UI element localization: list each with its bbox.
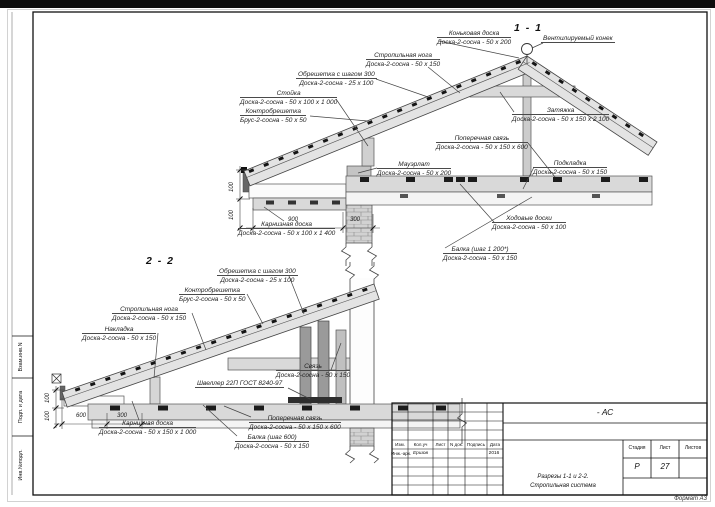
titleblock-stage-label: Стадия xyxy=(623,445,651,451)
roof-slope-right xyxy=(518,56,657,155)
titleblock-signer-date: 2016 xyxy=(485,451,503,456)
dim-600: 600 xyxy=(76,413,86,419)
titleblock-col-list: Лист xyxy=(433,442,448,447)
titleblock-sheet-value: 27 xyxy=(651,462,679,471)
callout-lathing-1-1: Обрешетка с шагом 300 Доска-2-сосна - 25… xyxy=(296,71,377,87)
titleblock-col-podpis: Подпись xyxy=(465,442,487,447)
callout-stud: Стойка Доска-2-сосна - 50 х 100 х 1 000 xyxy=(240,90,337,106)
dim-900: 900 xyxy=(288,217,298,223)
ridge-vent-circle xyxy=(522,44,533,55)
callout-cross-brace-1-1: Поперечная связь Доска-2-сосна - 50 х 15… xyxy=(436,135,528,151)
callout-counter-lathing-1-1: Контробрешетка Брус-2-сосна - 50 х 50 xyxy=(240,108,306,124)
callout-walk-boards: Ходовые доски Доска-2-сосна - 50 х 100 xyxy=(492,215,566,231)
titleblock-sheets-label: Листов xyxy=(679,445,707,451)
dim-300-s2: 300 xyxy=(117,413,127,419)
callout-ridge-board: Коньковая доска Доска-2-сосна - 50 х 200 xyxy=(437,30,511,46)
callout-vent-ridge: Вентилируемый конек xyxy=(541,35,615,43)
callout-eave-board-1-1: Карнизная доска Доска-2-сосна - 50 х 100… xyxy=(238,221,335,237)
stud-block xyxy=(362,138,374,166)
callout-channel: Швеллер 22П ГОСТ 8240-97 xyxy=(195,380,284,388)
callout-rafter-1-1: Стропильная нога Доска-2-сосна - 50 х 15… xyxy=(366,52,440,68)
dim-100-s2a: 100 xyxy=(45,390,53,406)
titleblock-stage-value: Р xyxy=(623,462,651,471)
wall-1-1 xyxy=(346,205,372,243)
callout-cross-brace-2-2: Поперечная связь Доска-2-сосна - 50 х 15… xyxy=(249,415,341,431)
section-title-2-2: 2 - 2 xyxy=(146,255,175,267)
callout-lathing-2-2: Обрешетка с шагом 300 Доска-2-сосна - 25… xyxy=(217,268,298,284)
titleblock-doc-title-line1: Разрезы 1-1 и 2-2. xyxy=(505,474,621,480)
titleblock-col-ndok: N док. xyxy=(448,442,465,447)
titleblock-signer-name: Ершов xyxy=(408,451,433,456)
callout-plate: Накладка Доска-2-сосна - 50 х 150 xyxy=(82,326,156,342)
channel-beam xyxy=(288,397,342,403)
callout-counter-lathing-2-2: Контробрешетка Брус-2-сосна - 50 х 50 xyxy=(179,287,245,303)
callout-rafter-2-2: Стропильная нога Доска-2-сосна - 50 х 15… xyxy=(112,306,186,322)
callout-brace: Связь Доска-2-сосна - 50 х 150 xyxy=(276,363,350,379)
dim-100-s1a: 100 xyxy=(229,179,237,195)
titleblock-code: - АС xyxy=(503,407,707,417)
format-label: Формат А3 xyxy=(630,496,707,502)
side-label-vzam: Взам.инв.N xyxy=(18,337,28,377)
callout-beam-2-2: Балка (шаг 600) Доска-2-сосна - 50 х 150 xyxy=(235,434,309,450)
callout-pad: Подкладка Доска-2-сосна - 50 х 150 xyxy=(533,160,607,176)
callout-tie: Затяжка Доска-2-сосна - 50 х 150 х 2 100 xyxy=(512,107,609,123)
ridge-end-marker xyxy=(52,374,61,383)
mauerlat-block xyxy=(347,166,371,177)
titleblock-col-data: Дата xyxy=(487,442,503,447)
dim-100-s2b: 100 xyxy=(45,408,53,424)
side-label-podp: Подп. и дата xyxy=(18,379,28,435)
callout-eave-board-2-2: Карнизная доска Доска-2-сосна - 50 х 150… xyxy=(99,420,196,436)
dim-100-s1b: 100 xyxy=(229,207,237,223)
titleblock-sheet-label: Лист xyxy=(651,445,679,451)
callout-mauerlat: Мауэрлат Доска-2-сосна - 50 х 200 xyxy=(377,161,451,177)
drawing-sheet: 1 - 1 2 - 2 Коньковая доска Доска-2-сосн… xyxy=(0,0,715,507)
dim-300-s1: 300 xyxy=(350,217,360,223)
titleblock-doc-title-line2: Стропильная система xyxy=(505,483,621,489)
callout-beam-1-1: Балка (шаг 1 200*) Доска-2-сосна - 50 х … xyxy=(443,246,517,262)
side-label-inv: Инв.№подл. xyxy=(18,437,28,493)
titleblock-col-kol: Кол.уч xyxy=(408,442,433,447)
section-title-1-1: 1 - 1 xyxy=(514,22,543,34)
titleblock-col-izm: Изм. xyxy=(392,442,408,447)
